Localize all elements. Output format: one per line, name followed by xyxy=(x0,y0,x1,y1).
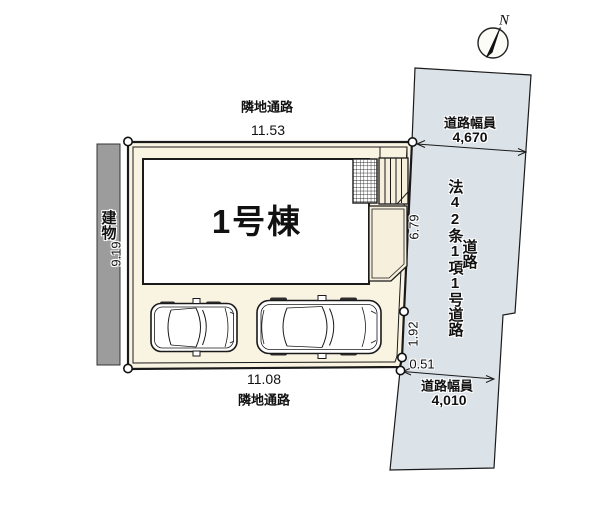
site-plan: N 隣地通路 11.53 道路幅員 4,670 法42条1項1号道路 道路 建物… xyxy=(0,0,600,508)
building-unit-label: 1号棟 xyxy=(212,195,302,243)
north-label: N xyxy=(499,13,509,30)
passage-dimension-top: 11.53 xyxy=(251,122,285,138)
porch-area xyxy=(369,206,407,281)
dimension-right-mid: 1.92 xyxy=(406,321,421,346)
road-width-value-bottom: 4,010 xyxy=(431,392,466,408)
passage-dimension-bottom: 11.08 xyxy=(247,371,281,387)
passage-label-bottom: 隣地通路 xyxy=(238,390,290,409)
neighbor-building-label: 建物 xyxy=(101,210,116,240)
north-arrow-icon xyxy=(478,28,508,59)
dimension-right-upper: 6.79 xyxy=(407,214,422,239)
road-label: 道路 xyxy=(462,239,477,269)
dimension-right-small: 0.51 xyxy=(409,357,434,372)
road-width-value-top: 4,670 xyxy=(452,129,487,145)
passage-label-top: 隣地通路 xyxy=(241,97,293,116)
balcony-hatch-icon xyxy=(353,159,377,203)
dimension-left: 9.19 xyxy=(109,241,124,266)
car-icon xyxy=(151,299,237,357)
car-icon xyxy=(257,296,381,359)
site-plan-drawing xyxy=(0,0,600,508)
